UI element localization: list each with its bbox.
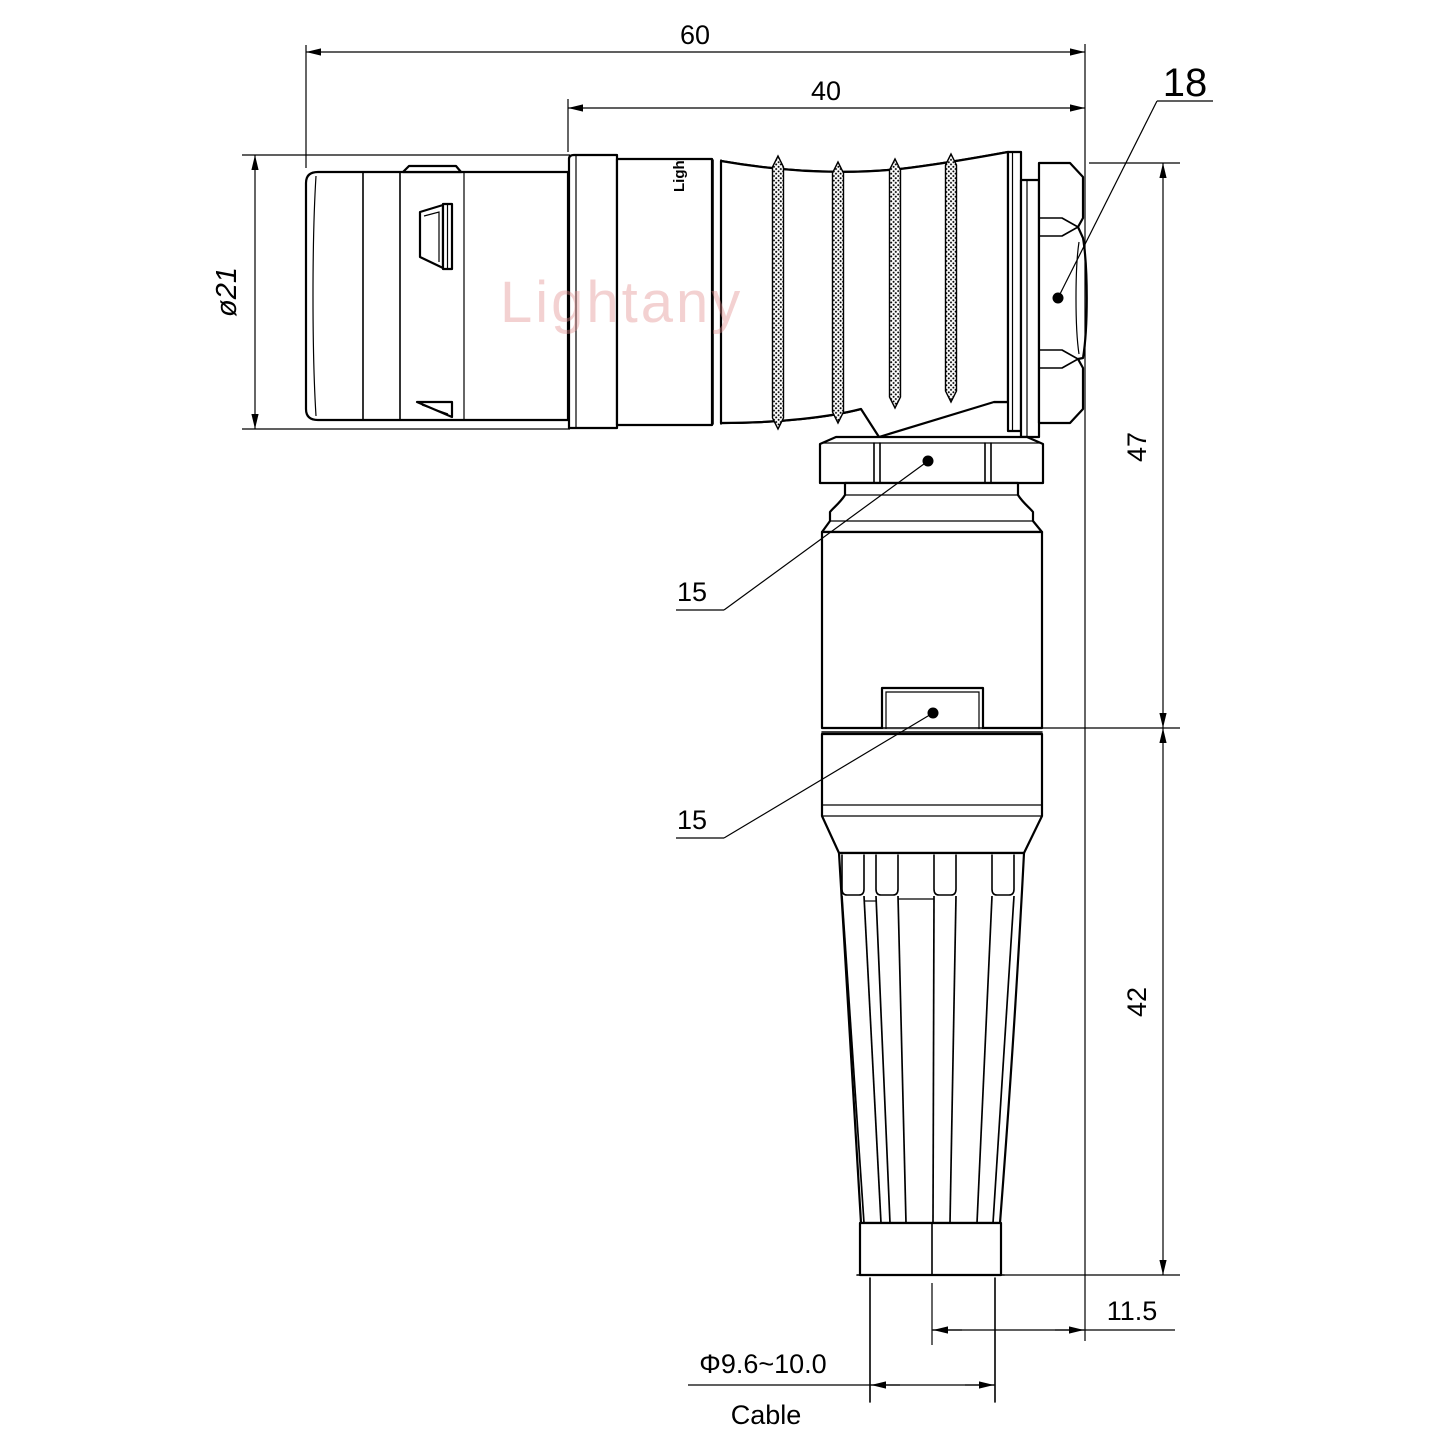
dim-upper-height: 47: [1122, 163, 1163, 728]
dim-lower-height: 42: [1122, 728, 1163, 1275]
strain-relief-boot: [839, 853, 1024, 1223]
watermark-text: Lightany: [500, 270, 743, 335]
leader-dot-15b: [928, 708, 939, 719]
dim-overall-length: 60: [306, 20, 1085, 52]
latch-window: [420, 204, 452, 269]
dim-47-label: 47: [1122, 432, 1152, 462]
knurl-band-3: [890, 159, 901, 408]
leader-dot-18: [1053, 293, 1064, 304]
knurl-band-4: [946, 154, 957, 402]
backshell-body: [822, 532, 1042, 853]
connector-technical-drawing: Lightany: [0, 0, 1440, 1440]
cable-dia-label: Φ9.6~10.0: [699, 1349, 826, 1379]
leader-dot-15a: [923, 456, 934, 467]
dim-rear-length: 40: [568, 76, 1085, 108]
dim-15a-label: 15: [677, 577, 707, 607]
dim-cable-diameter: Φ9.6~10.0 Cable: [688, 1349, 995, 1430]
latch-bump: [403, 166, 461, 172]
dim-shell-diameter: ø21: [211, 155, 255, 429]
knurl-band-2: [833, 162, 844, 423]
dim-40-label: 40: [811, 76, 841, 106]
dim-11-5-label: 11.5: [1107, 1296, 1158, 1326]
body-logo-text: Lightany: [671, 129, 688, 192]
dim-42-label: 42: [1122, 987, 1152, 1017]
rear-washer: [1021, 180, 1039, 437]
backshell-neck: [822, 483, 1042, 532]
grip-fill: [721, 152, 1008, 437]
cable-word-label: Cable: [731, 1400, 802, 1430]
dim-dia21-label: ø21: [211, 267, 243, 317]
grip-section: [721, 152, 1008, 437]
coupling-hex-nut: [1039, 163, 1087, 423]
dim-15b-label: 15: [677, 805, 707, 835]
dim-18-label: 18: [1163, 61, 1208, 105]
dim-60-label: 60: [680, 20, 710, 50]
rear-flange: [1008, 152, 1021, 431]
cable-sleeve: [857, 1223, 1004, 1275]
elbow-backshell: [820, 437, 1043, 1402]
technical-drawing-page: Lightany: [0, 0, 1440, 1440]
dim-exit-offset: 11.5: [932, 1296, 1175, 1330]
lower-body: [822, 734, 1042, 853]
knurl-band-1: [773, 156, 784, 429]
